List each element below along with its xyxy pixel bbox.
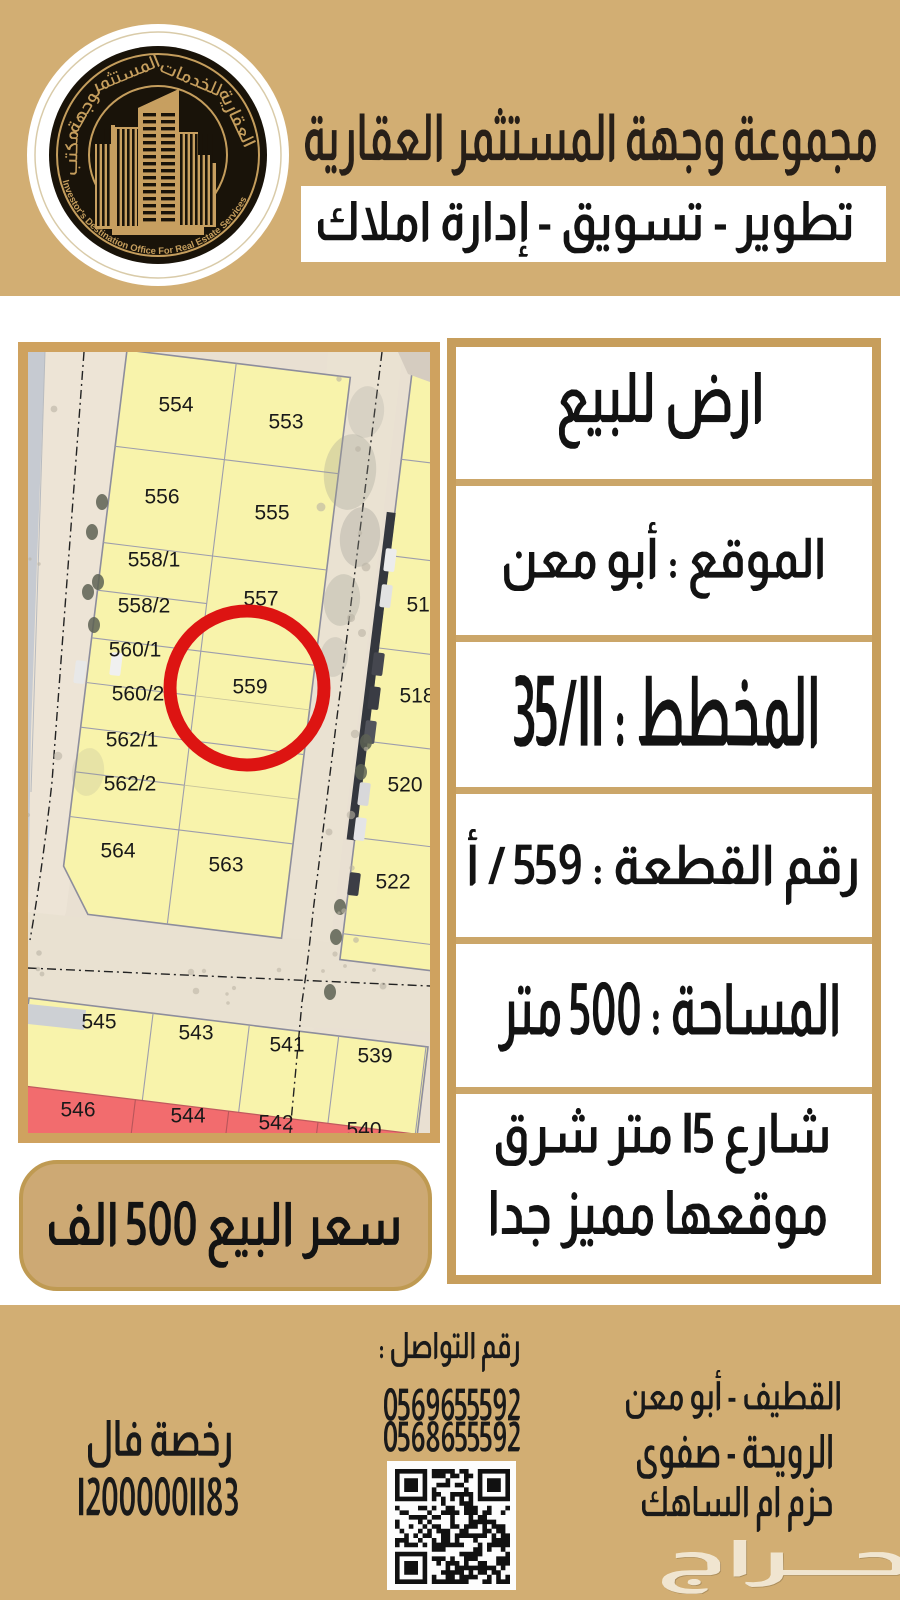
svg-text:554: 554 [158, 394, 193, 417]
svg-text:564: 564 [100, 840, 135, 863]
svg-text:558/2: 558/2 [118, 595, 171, 618]
svg-text:562/2: 562/2 [104, 773, 157, 796]
svg-text:541: 541 [269, 1034, 304, 1057]
svg-text:546: 546 [60, 1099, 95, 1122]
svg-text:520: 520 [387, 774, 422, 797]
svg-text:553: 553 [268, 411, 303, 434]
svg-text:558/1: 558/1 [128, 549, 181, 572]
svg-text:560/1: 560/1 [109, 639, 162, 662]
svg-text:560/2: 560/2 [112, 683, 165, 706]
svg-text:559: 559 [232, 676, 267, 699]
svg-text:556: 556 [144, 486, 179, 509]
svg-text:516: 516 [406, 594, 430, 617]
svg-text:543: 543 [178, 1022, 213, 1045]
svg-text:545: 545 [81, 1011, 116, 1034]
svg-text:542: 542 [258, 1112, 293, 1133]
svg-text:522: 522 [375, 871, 410, 894]
svg-text:563: 563 [208, 854, 243, 877]
svg-text:518: 518 [399, 685, 430, 708]
svg-text:562/1: 562/1 [106, 729, 159, 752]
svg-text:539: 539 [357, 1045, 392, 1068]
svg-text:544: 544 [170, 1105, 205, 1128]
svg-text:555: 555 [254, 502, 289, 525]
svg-text:540: 540 [346, 1119, 381, 1133]
